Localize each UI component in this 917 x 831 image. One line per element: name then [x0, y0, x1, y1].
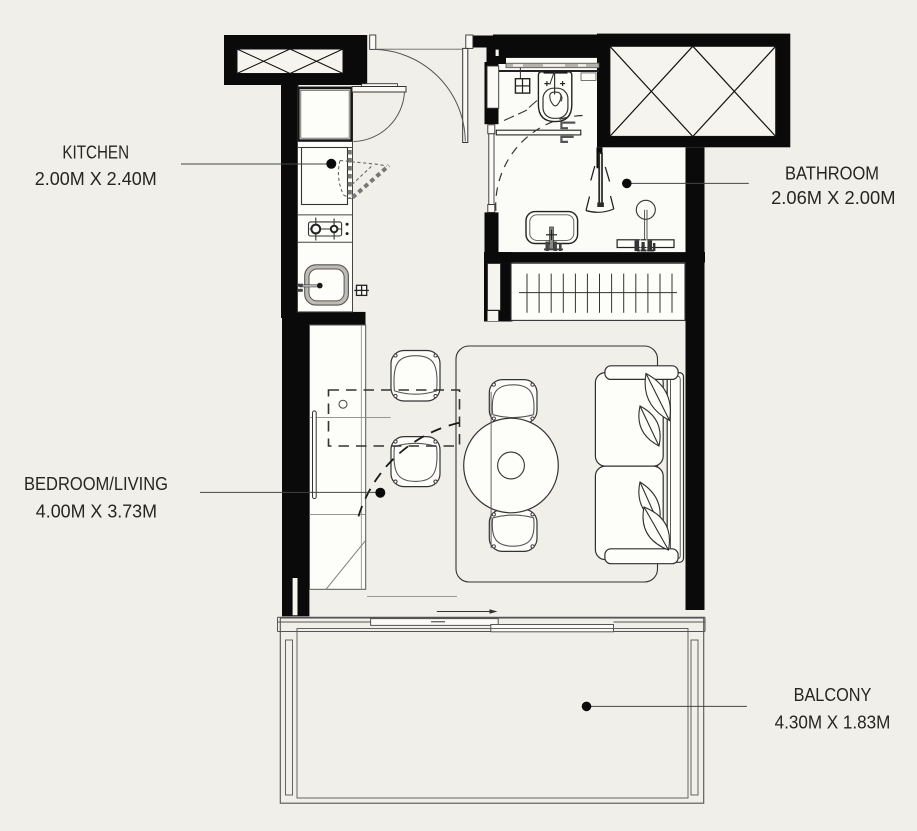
svg-text:4.30M X 1.83M: 4.30M X 1.83M — [775, 713, 891, 733]
svg-text:KITCHEN: KITCHEN — [62, 143, 129, 163]
svg-text:2.06M X 2.00M: 2.06M X 2.00M — [771, 188, 895, 208]
svg-text:BALCONY: BALCONY — [794, 685, 872, 705]
svg-text:2.00M X 2.40M: 2.00M X 2.40M — [35, 169, 157, 189]
svg-text:BEDROOM/LIVING: BEDROOM/LIVING — [24, 474, 168, 494]
svg-text:4.00M X 3.73M: 4.00M X 3.73M — [36, 502, 157, 522]
svg-text:BATHROOM: BATHROOM — [785, 164, 879, 184]
